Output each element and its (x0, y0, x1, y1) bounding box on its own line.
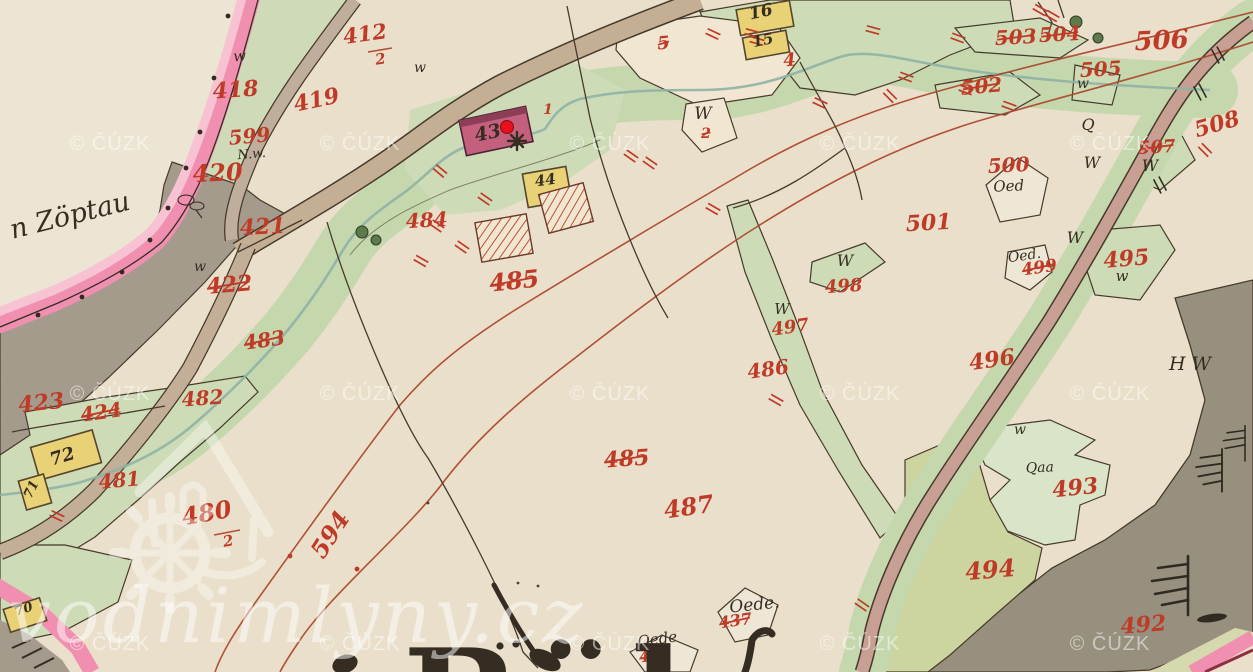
svg-text:1: 1 (543, 102, 553, 118)
parcel-number-485: 485 (488, 264, 541, 298)
copyright-watermark: © ČÚZK (1070, 382, 1151, 405)
svg-text:482: 482 (181, 385, 224, 412)
svg-text:481: 481 (98, 466, 142, 494)
map-annotation-Qaa: Qaa (1025, 459, 1054, 476)
map-annotation-Nw: N.w. (236, 146, 267, 164)
parcel-number-423: 423 (17, 388, 65, 419)
svg-text:W: W (837, 251, 855, 270)
parcel-number-2: 2 (700, 126, 711, 142)
cadastral-map-canvas[interactable]: 4122418419599420421422483423424482481484… (0, 0, 1253, 672)
svg-text:Q: Q (1081, 115, 1094, 134)
map-annotation-Oed: Oed (993, 176, 1025, 196)
svg-text:w: w (1116, 267, 1129, 285)
parcel-number-502: 502 (960, 72, 1004, 100)
svg-text:501: 501 (905, 209, 952, 237)
copyright-watermark: © ČÚZK (570, 132, 651, 155)
svg-text:Oed: Oed (993, 176, 1025, 196)
map-annotation-W: W (1067, 228, 1085, 247)
copyright-watermark: © ČÚZK (570, 382, 651, 405)
parcel-number-422: 422 (205, 270, 253, 300)
svg-text:N.w.: N.w. (236, 146, 267, 164)
parcel-number-503: 503 (994, 24, 1037, 50)
copyright-watermark: © ČÚZK (1070, 632, 1151, 655)
copyright-watermark: © ČÚZK (70, 132, 151, 155)
svg-text:W: W (774, 300, 791, 318)
svg-text:W: W (1142, 156, 1160, 175)
svg-text:4: 4 (782, 50, 796, 72)
svg-text:500: 500 (987, 152, 1030, 178)
svg-text:44: 44 (534, 170, 557, 191)
copyright-watermark: © ČÚZK (320, 382, 401, 405)
parcel-number-481: 481 (98, 466, 142, 494)
parcel-number-498: 498 (824, 275, 863, 299)
map-annotation-w: w (414, 60, 426, 76)
copyright-watermark: © ČÚZK (570, 632, 651, 655)
copyright-watermark: © ČÚZK (70, 382, 151, 405)
svg-text:W: W (1084, 153, 1102, 172)
building-ruin-hatched-1 (475, 214, 533, 262)
svg-text:W: W (694, 104, 713, 124)
svg-text:494: 494 (964, 553, 1016, 586)
map-annotation-w: w (1116, 267, 1129, 285)
building-number-44: 44 (534, 170, 557, 191)
parcel-number-482: 482 (181, 385, 224, 412)
copyright-watermark: © ČÚZK (320, 632, 401, 655)
copyright-watermark: © ČÚZK (820, 132, 901, 155)
parcel-number-494: 494 (964, 553, 1016, 586)
parcel-number-500: 500 (987, 152, 1030, 178)
forest-label-HW: H W (1168, 353, 1213, 375)
svg-text:w: w (232, 46, 247, 65)
map-annotation-W: W (774, 300, 791, 318)
copyright-watermark: © ČÚZK (70, 632, 151, 655)
map-annotation-w: w (232, 46, 247, 65)
map-annotation-w: w (1014, 422, 1026, 438)
svg-text:423: 423 (17, 388, 65, 419)
map-annotation-Q: Q (1081, 115, 1094, 134)
map-annotation-W: W (1084, 153, 1102, 172)
map-annotation-W: W (694, 104, 713, 124)
parcel-number-421: 421 (239, 213, 286, 241)
svg-text:418: 418 (212, 75, 260, 104)
poi-marker[interactable] (501, 121, 514, 134)
parcel-number-504: 504 (1038, 21, 1081, 47)
parcel-number-506: 506 (1134, 25, 1190, 58)
parcel-number-418: 418 (212, 75, 260, 104)
parcel-number-501: 501 (905, 209, 952, 237)
svg-text:420: 420 (192, 157, 244, 189)
svg-text:498: 498 (824, 275, 863, 299)
map-annotation-W: W (1142, 156, 1160, 175)
svg-text:W: W (1067, 228, 1085, 247)
parcel-number-4: 4 (782, 50, 796, 72)
map-annotation-w: w (194, 259, 206, 275)
copyright-watermark: © ČÚZK (320, 132, 401, 155)
svg-text:484: 484 (405, 207, 448, 233)
copyright-watermark: © ČÚZK (820, 632, 901, 655)
svg-text:w: w (1077, 76, 1089, 92)
svg-text:H W: H W (1168, 353, 1213, 375)
svg-text:493: 493 (1051, 473, 1099, 504)
parcel-number-485: 485 (603, 444, 651, 473)
parcel-number-420: 420 (192, 157, 244, 189)
copyright-watermark: © ČÚZK (820, 382, 901, 405)
parcel-number-484: 484 (405, 207, 448, 233)
svg-text:w: w (1014, 422, 1026, 438)
parcel-number-493: 493 (1051, 473, 1099, 504)
svg-text:Qaa: Qaa (1025, 459, 1054, 476)
map-annotation-w: w (1077, 76, 1089, 92)
copyright-watermark: © ČÚZK (1070, 132, 1151, 155)
svg-text:421: 421 (239, 213, 286, 241)
parcel-number-5: 5 (656, 33, 670, 55)
svg-text:w: w (414, 60, 426, 76)
mill-wheel-icon (508, 132, 526, 150)
svg-text:w: w (194, 259, 206, 275)
svg-text:506: 506 (1134, 25, 1190, 58)
map-annotation-W: W (837, 251, 855, 270)
parcel-number-1: 1 (543, 102, 553, 118)
